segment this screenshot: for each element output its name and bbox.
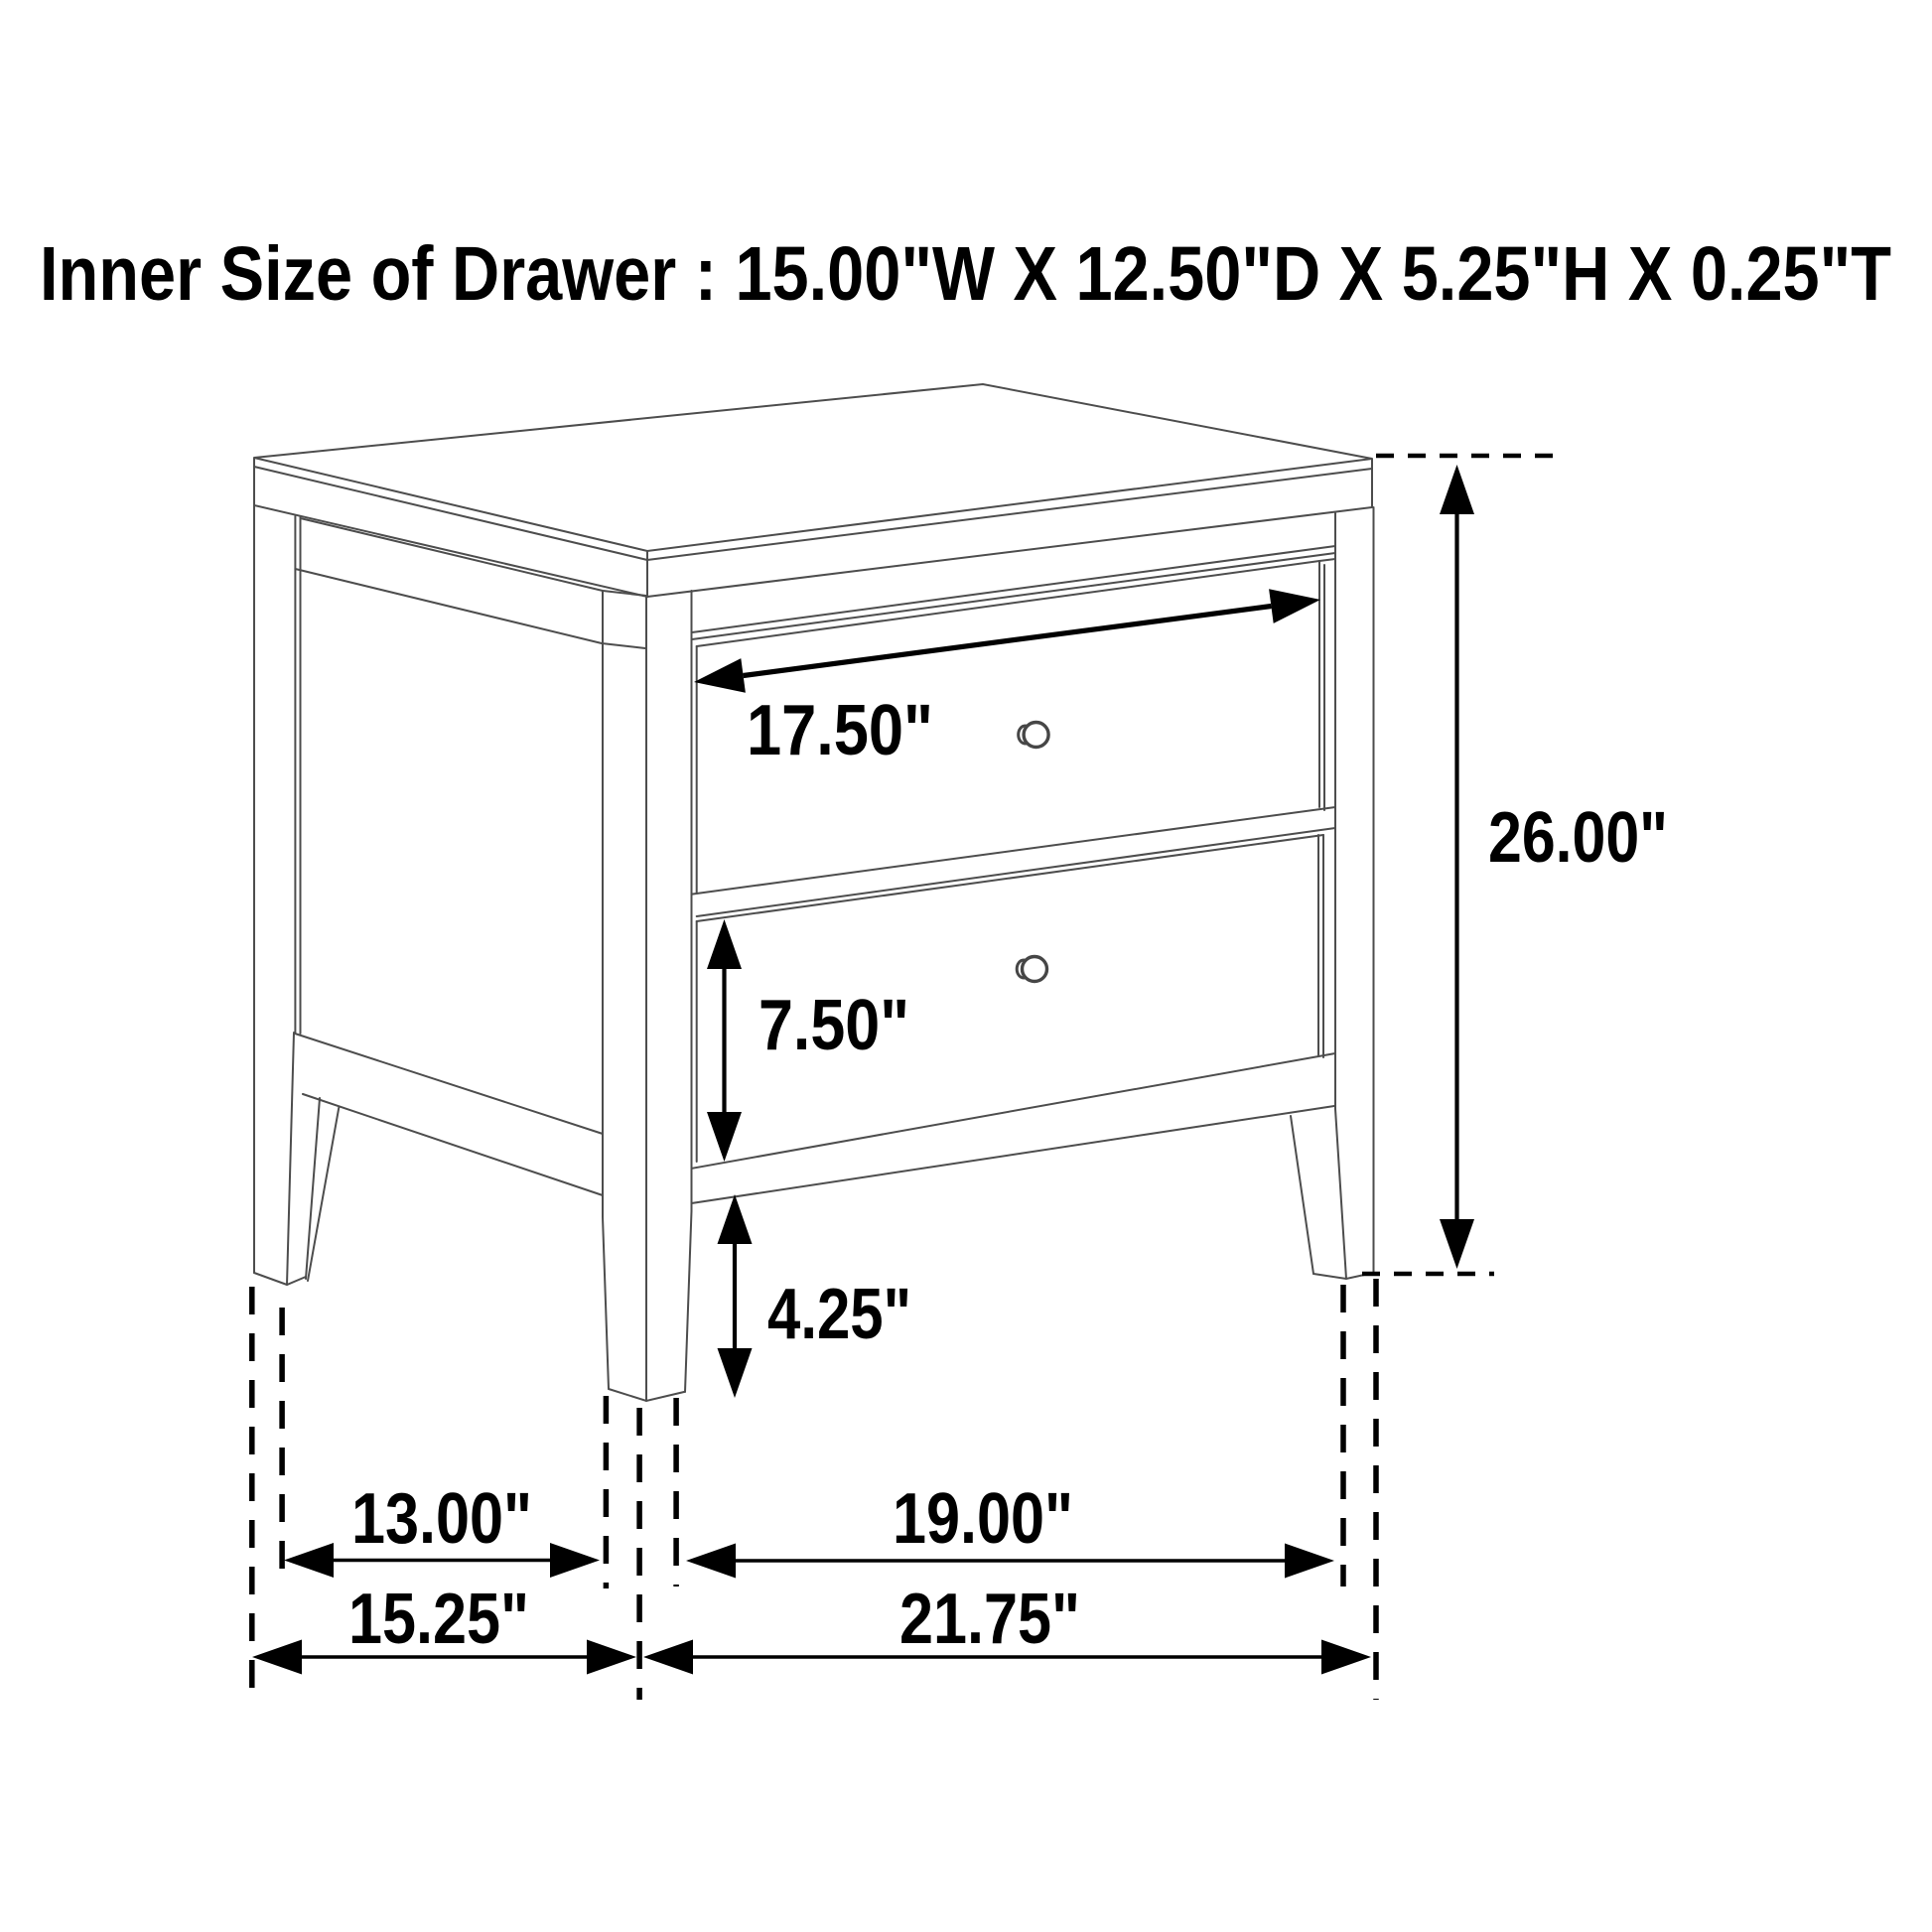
svg-text:17.50": 17.50" [747,691,933,770]
svg-text:7.50": 7.50" [759,986,909,1065]
svg-text:21.75": 21.75" [899,1580,1080,1659]
svg-text:15.25": 15.25" [348,1580,529,1659]
svg-text:19.00": 19.00" [893,1479,1073,1559]
svg-text:26.00": 26.00" [1488,798,1668,878]
svg-text:Inner Size of Drawer : 15.00"W: Inner Size of Drawer : 15.00"W X 12.50"D… [40,231,1891,317]
svg-text:4.25": 4.25" [767,1275,911,1354]
svg-text:13.00": 13.00" [351,1479,532,1559]
